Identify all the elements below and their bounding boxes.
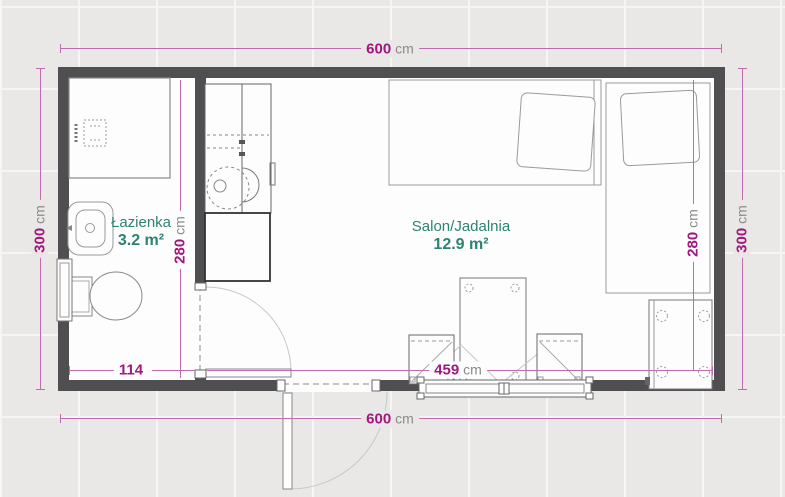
room-label-salon: Salon/Jadalnia 12.9 m² (412, 218, 510, 254)
dimension-label-bottom: 600cm (361, 411, 419, 428)
room-area: 3.2 m² (111, 232, 171, 250)
tick (738, 68, 747, 69)
room-name: Łazienka (111, 214, 171, 232)
dimension-label-left: 300cm (32, 200, 49, 258)
toilet (68, 272, 142, 320)
window-left (57, 259, 72, 321)
dimension-label-salon-width: 459cm (429, 362, 487, 379)
window-bottom (417, 377, 593, 399)
tick (712, 366, 713, 375)
tick (721, 44, 722, 53)
entry-door-leaf (283, 393, 292, 489)
chair-right (537, 334, 582, 384)
tick (69, 366, 70, 375)
dimension-label-salon-height: 280cm (685, 204, 702, 262)
room-area: 12.9 m² (412, 236, 510, 254)
tick (738, 389, 747, 390)
entry-door (277, 380, 387, 489)
floor-plan-canvas: 600cm 600cm 300cm 300cm 280cm 280cm 114 … (0, 0, 785, 497)
tick (60, 44, 61, 53)
dimension-label-top: 600cm (361, 41, 419, 58)
bathroom-door (195, 283, 291, 379)
room-name: Salon/Jadalnia (412, 218, 510, 236)
dimension-label-bathroom-width: 114 (114, 362, 152, 379)
tick (36, 68, 45, 69)
kitchen-unit (205, 84, 275, 281)
entry-door-swing (290, 392, 387, 489)
tick (721, 414, 722, 423)
desk (645, 300, 712, 389)
room-label-bathroom: Łazienka 3.2 m² (111, 214, 171, 250)
tick (60, 414, 61, 423)
bed-horizontal (389, 80, 601, 185)
tick (36, 389, 45, 390)
dimension-label-right: 300cm (734, 200, 751, 258)
shower-tray (69, 78, 170, 178)
bathroom-door-swing (206, 287, 291, 372)
dimension-label-bathroom-height: 280cm (172, 211, 189, 269)
washbasin (66, 202, 113, 255)
